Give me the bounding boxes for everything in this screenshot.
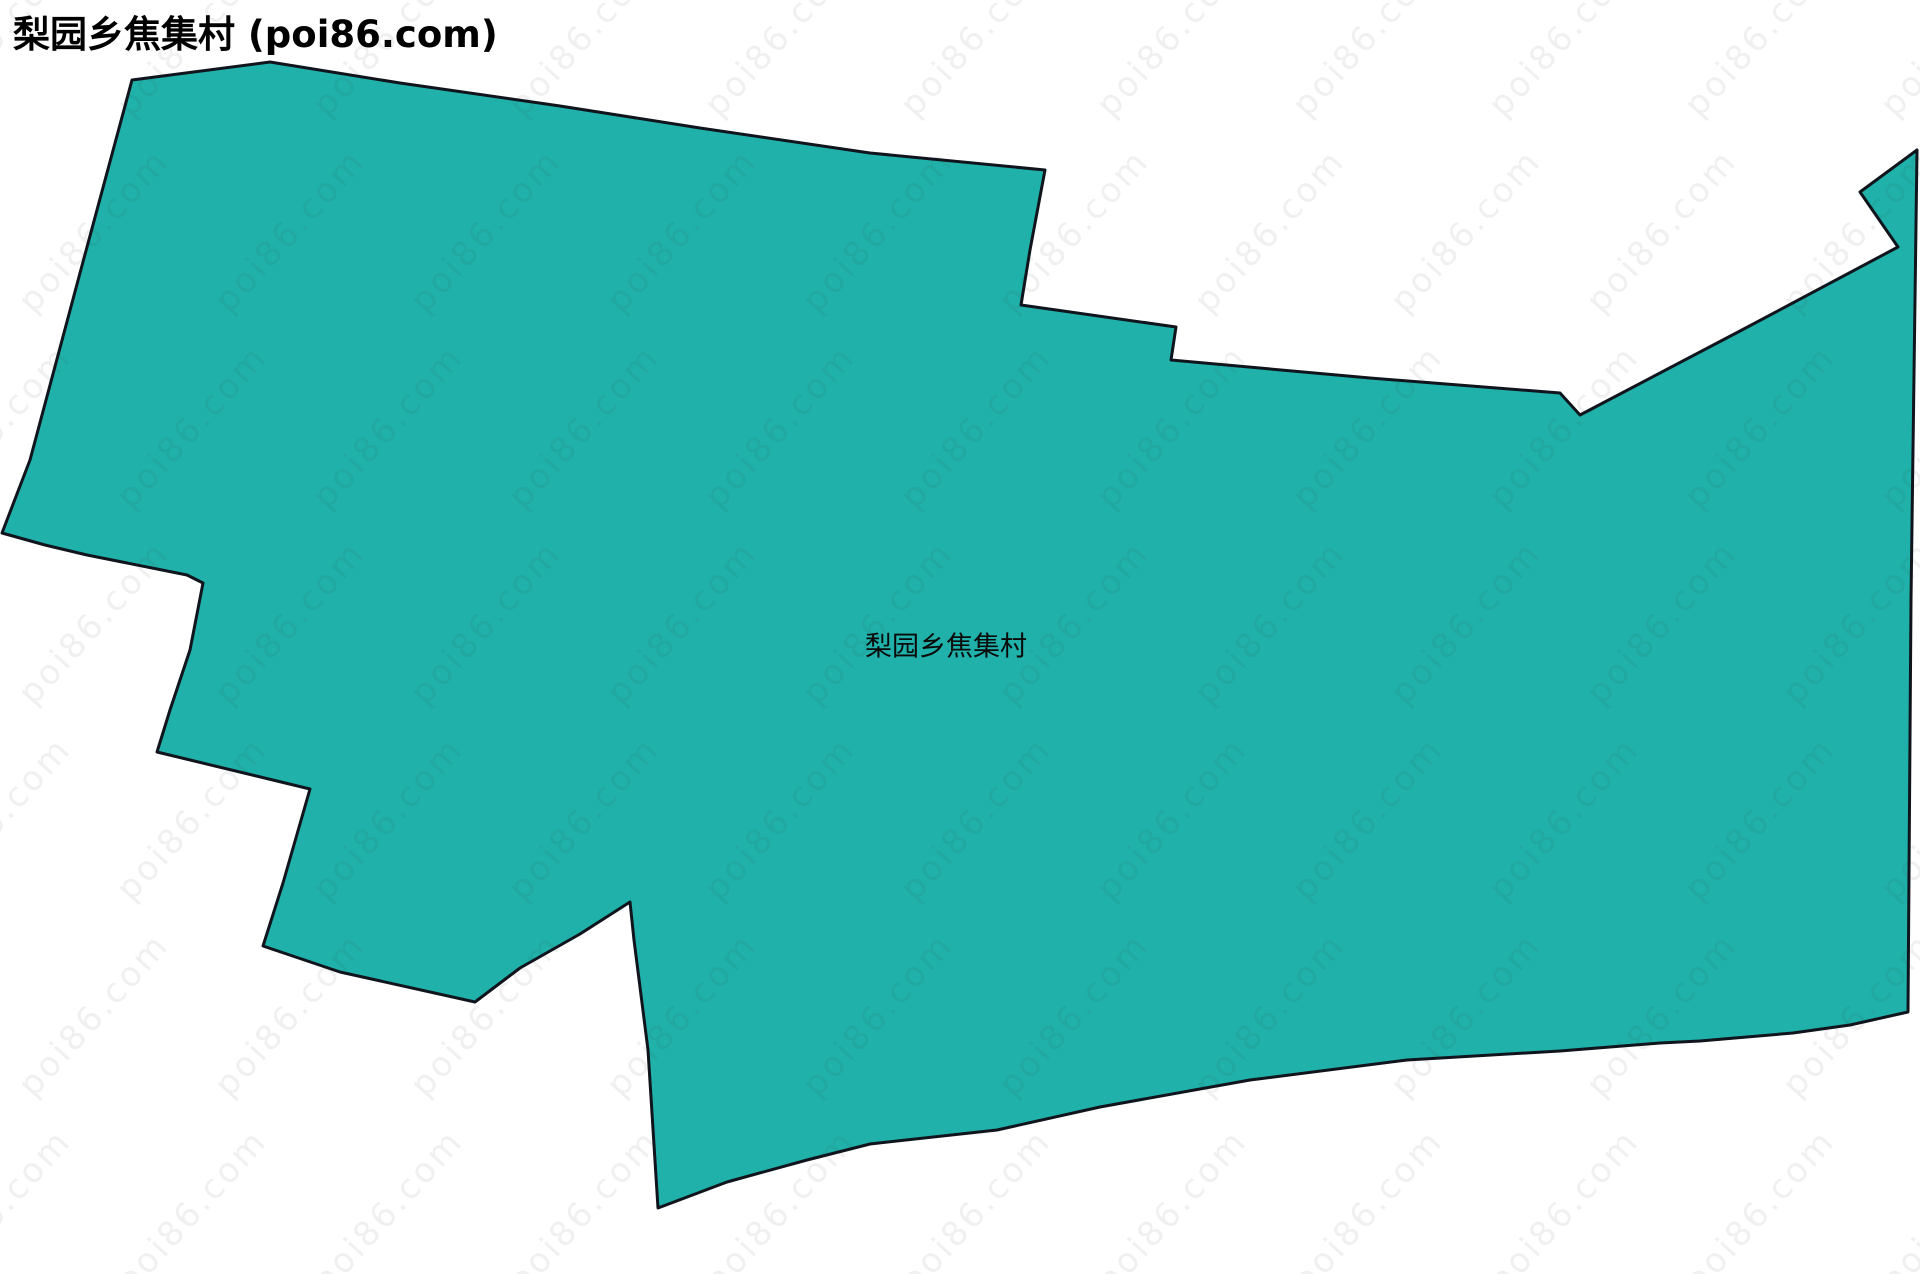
map-canvas: poi86.compoi86.compoi86.compoi86.compoi8… xyxy=(0,0,1920,1274)
region-label: 梨园乡焦集村 xyxy=(865,625,1027,664)
page-title: 梨园乡焦集村 (poi86.com) xyxy=(13,4,498,58)
